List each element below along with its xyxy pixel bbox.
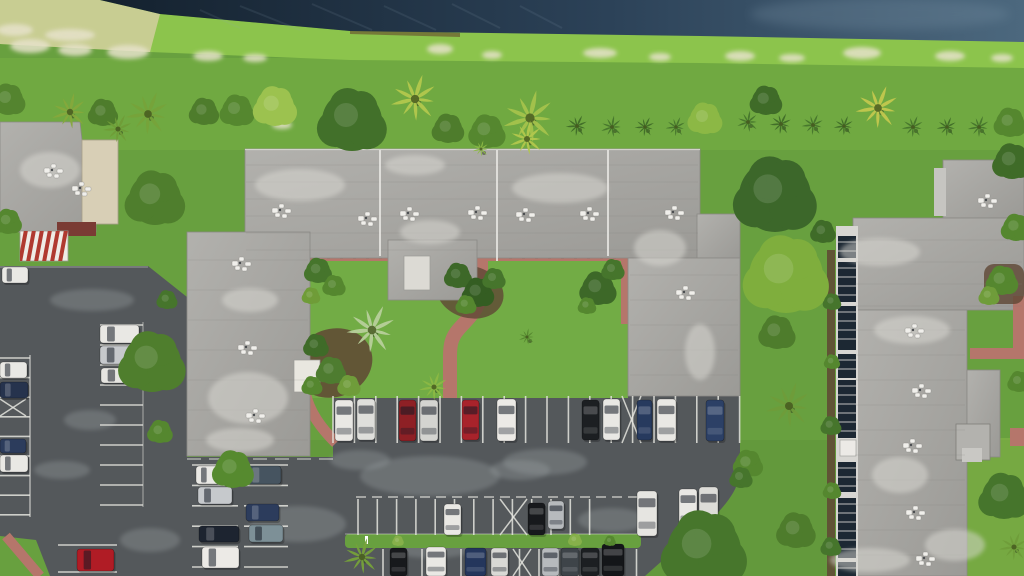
right-red-path-h	[970, 348, 1024, 359]
car-body	[357, 399, 375, 440]
car	[0, 362, 29, 380]
car	[582, 400, 601, 442]
palm-crown	[911, 125, 915, 129]
main-building-northeast-step	[697, 214, 740, 258]
roof-wear-patch	[206, 428, 274, 452]
palm-crown	[779, 122, 783, 126]
foliage-highlight	[827, 297, 833, 303]
car-rear-window	[337, 428, 352, 435]
ac-unit	[580, 211, 586, 216]
ac-unit	[918, 329, 924, 333]
car-windshield	[5, 364, 10, 377]
ac-unit	[239, 257, 244, 261]
car-windshield	[467, 552, 485, 558]
ac-unit	[985, 194, 990, 198]
car-windshield	[701, 494, 717, 503]
ac-unit	[54, 174, 59, 178]
ac-unit	[665, 210, 671, 215]
car	[548, 501, 566, 531]
car-rear-window	[708, 428, 723, 435]
ac-unit	[908, 333, 913, 337]
ac-unit	[285, 209, 291, 213]
foliage-highlight	[827, 486, 833, 492]
sand-patch	[649, 53, 671, 61]
sand-patch	[779, 54, 805, 62]
car	[246, 504, 281, 523]
foliage-highlight	[588, 279, 601, 292]
car-windshield	[204, 489, 211, 503]
ac-unit	[361, 221, 366, 225]
asphalt-wear-patch	[330, 450, 390, 470]
car-windshield	[5, 384, 11, 397]
sand-patch	[991, 54, 1013, 62]
ac-unit	[79, 182, 84, 186]
foliage-highlight	[764, 254, 794, 284]
palm-crown	[945, 125, 949, 129]
foliage-highlight	[1013, 376, 1021, 384]
ac-unit	[468, 210, 474, 215]
ac-unit	[365, 212, 370, 216]
ac-unit	[249, 418, 254, 422]
sand-patch	[427, 44, 453, 54]
foliage-highlight	[264, 96, 279, 111]
ac-unit	[75, 191, 80, 195]
ac-unit	[912, 324, 917, 328]
car-rear-window	[446, 525, 460, 530]
car-body	[542, 548, 559, 576]
car-windshield	[550, 505, 563, 511]
car	[602, 544, 626, 576]
car-body	[0, 362, 27, 378]
ac-unit	[279, 204, 284, 208]
car-windshield	[499, 406, 515, 414]
car	[420, 400, 440, 443]
ac-vent	[475, 211, 477, 213]
car-rear-window	[422, 428, 437, 435]
foliage-highlight	[139, 183, 160, 204]
ac-unit	[516, 212, 522, 217]
car-body	[0, 439, 26, 453]
car-windshield	[337, 407, 352, 415]
car-rear-window	[530, 525, 544, 530]
ac-vent	[79, 187, 81, 189]
sand-patch	[45, 29, 95, 41]
ac-vent	[913, 511, 915, 513]
ac-unit	[689, 291, 695, 295]
ac-vent	[523, 213, 525, 215]
ac-vent	[239, 262, 241, 264]
ac-unit	[678, 211, 684, 215]
ac-unit	[246, 413, 252, 418]
foliage-highlight	[984, 291, 991, 298]
foliage-highlight	[228, 102, 240, 114]
car	[581, 548, 601, 576]
glass-panel	[838, 354, 856, 378]
foliage-highlight	[582, 301, 588, 307]
sand-patch	[583, 48, 617, 58]
ac-unit	[523, 208, 528, 212]
foliage-highlight	[1008, 220, 1018, 230]
car-body	[420, 400, 438, 441]
car-windshield	[201, 468, 207, 483]
ac-unit	[519, 217, 524, 221]
foliage-highlight	[343, 380, 351, 388]
car-body	[202, 547, 239, 568]
ac-unit	[85, 187, 91, 191]
ac-vent	[672, 211, 674, 213]
ac-unit	[668, 215, 673, 219]
car-rear-window	[493, 567, 507, 571]
car	[561, 548, 581, 576]
ac-unit	[919, 384, 924, 388]
car-body	[335, 400, 353, 441]
ac-vent	[365, 217, 367, 219]
car-windshield	[583, 552, 598, 558]
ac-vent	[587, 212, 589, 214]
car	[399, 400, 418, 443]
car-body	[390, 548, 407, 576]
roof-wear-patch	[872, 457, 928, 493]
ac-unit	[915, 334, 920, 338]
foliage-highlight	[162, 295, 169, 302]
palm-crown	[144, 110, 152, 118]
ac-unit	[232, 261, 238, 266]
palm-crown	[115, 126, 120, 131]
ac-unit	[916, 556, 922, 561]
ac-vent	[245, 346, 247, 348]
car	[657, 399, 678, 443]
car-windshield	[659, 406, 675, 414]
palm-crown	[411, 95, 419, 103]
right-building-annex	[934, 168, 946, 216]
palm-crown	[431, 384, 436, 389]
ac-unit	[403, 216, 408, 220]
car-body	[603, 399, 620, 440]
palm-crown	[526, 336, 529, 339]
foliage-highlight	[309, 339, 318, 348]
ac-unit	[475, 206, 480, 210]
ac-unit	[913, 506, 918, 510]
ac-unit	[481, 211, 487, 215]
ac-unit	[529, 213, 535, 217]
car-rear-window	[550, 520, 563, 524]
foliage-highlight	[740, 456, 750, 466]
car-windshield	[255, 527, 262, 541]
foliage-highlight	[826, 542, 833, 549]
foliage-highlight	[767, 323, 780, 336]
ac-unit	[679, 295, 684, 299]
car-body	[249, 525, 283, 542]
ac-unit	[410, 217, 415, 221]
car	[542, 548, 561, 576]
ac-unit	[275, 213, 280, 217]
palm-crown	[874, 104, 882, 112]
car-body	[497, 399, 516, 441]
ac-unit	[925, 389, 931, 393]
car	[202, 547, 241, 570]
car-body	[657, 399, 676, 441]
car	[249, 525, 285, 544]
ac-unit	[906, 510, 912, 515]
ac-unit	[916, 516, 921, 520]
aerial-photo: Aerial drone view of a condominium compl…	[0, 0, 1024, 576]
sand-patch	[725, 51, 755, 61]
asphalt-wear-patch	[64, 410, 116, 430]
ac-unit	[72, 186, 78, 191]
ac-unit	[912, 388, 918, 393]
foliage-highlight	[786, 521, 800, 535]
palm-crown	[785, 402, 793, 410]
car-body	[199, 526, 239, 542]
foliage-highlight	[95, 105, 105, 115]
foliage-highlight	[135, 346, 158, 369]
ac-unit	[590, 217, 595, 221]
ac-unit	[413, 212, 419, 216]
car-rear-window	[401, 428, 415, 435]
car-body	[548, 501, 564, 529]
left-building-beige-wing	[82, 140, 118, 224]
sand-patch	[935, 51, 965, 61]
car-windshield	[563, 552, 578, 558]
foliage-highlight	[328, 280, 336, 288]
car-body	[426, 547, 446, 576]
ac-unit	[282, 214, 287, 218]
ac-unit	[981, 203, 986, 207]
car	[444, 504, 463, 537]
ac-unit	[400, 211, 406, 216]
ac-unit	[913, 449, 918, 453]
asphalt-wear-patch	[578, 508, 646, 532]
foliage-highlight	[440, 121, 451, 132]
roof-wear-patch	[255, 169, 345, 201]
car-windshield	[252, 506, 259, 520]
car-body	[465, 548, 486, 576]
car	[603, 399, 622, 442]
car-windshield	[422, 407, 437, 415]
palm-crown	[575, 124, 579, 128]
palm-crown	[674, 125, 678, 129]
roof-wear-patch	[385, 155, 445, 175]
car	[637, 400, 654, 442]
foliage-highlight	[196, 104, 206, 114]
car-windshield	[84, 551, 91, 570]
car-body	[637, 491, 657, 536]
car	[2, 267, 30, 285]
car-windshield	[401, 407, 415, 415]
car-body	[528, 503, 545, 535]
ac-vent	[683, 291, 685, 293]
sand-patch	[243, 54, 267, 62]
foliage-highlight	[994, 273, 1005, 284]
ac-unit	[675, 216, 680, 220]
sand-patch	[58, 44, 92, 56]
car-body	[444, 504, 461, 535]
roof-wear-patch	[222, 288, 278, 312]
car	[0, 455, 30, 474]
foliage-highlight	[991, 484, 1009, 502]
ac-unit	[916, 444, 922, 448]
foliage-highlight	[816, 225, 825, 234]
ac-unit	[906, 448, 911, 452]
car-windshield	[604, 549, 623, 555]
foliage-highlight	[395, 538, 399, 542]
car-windshield	[7, 269, 12, 282]
car-body	[399, 400, 416, 441]
foliage-highlight	[222, 459, 236, 473]
car-rear-window	[584, 427, 598, 433]
car	[77, 549, 116, 573]
car-body	[246, 504, 279, 521]
foliage-highlight	[461, 300, 468, 307]
car-rear-window	[583, 567, 598, 571]
ac-unit	[978, 198, 984, 203]
ac-unit	[47, 173, 52, 177]
ac-unit	[51, 164, 56, 168]
car-body	[198, 487, 232, 504]
ac-unit	[368, 222, 373, 226]
car-windshield	[605, 406, 619, 414]
car-body	[582, 400, 599, 440]
sand-patch	[107, 45, 149, 59]
car-windshield	[359, 406, 374, 414]
sand-patch	[193, 51, 223, 61]
car-windshield	[5, 457, 11, 471]
car-windshield	[530, 508, 544, 514]
foliage-highlight	[571, 536, 576, 541]
car	[426, 547, 448, 576]
car-rear-window	[467, 567, 485, 571]
ac-unit	[57, 169, 63, 173]
foliage-highlight	[307, 381, 314, 388]
ac-unit	[686, 296, 691, 300]
palm-crown	[1011, 544, 1016, 549]
ac-unit	[909, 515, 914, 519]
palm-crown	[524, 136, 530, 142]
car-body	[0, 455, 28, 472]
ac-unit	[915, 393, 920, 397]
ac-unit	[256, 419, 261, 423]
car	[706, 400, 726, 443]
car-rear-window	[464, 427, 478, 433]
car-rear-window	[392, 567, 406, 571]
foliage-highlight	[470, 285, 481, 296]
ac-unit	[358, 216, 364, 221]
car-body	[0, 382, 28, 398]
car	[0, 439, 28, 455]
car-rear-window	[659, 428, 675, 435]
ac-unit	[676, 290, 682, 295]
car-rear-window	[605, 427, 619, 434]
ac-vent	[279, 209, 281, 211]
car-windshield	[107, 348, 115, 363]
balcony-glass	[838, 236, 856, 576]
asphalt-wear-patch	[120, 528, 180, 552]
foliage-highlight	[1002, 152, 1016, 166]
car-rear-window	[604, 566, 623, 571]
parking-median-grass	[345, 534, 641, 548]
car	[465, 548, 488, 576]
foliage-highlight	[323, 363, 333, 373]
car-rear-window	[639, 522, 656, 529]
ac-unit	[242, 267, 247, 271]
ac-unit	[905, 328, 911, 333]
car	[497, 399, 518, 443]
foliage-highlight	[306, 291, 312, 297]
ac-unit	[371, 217, 377, 221]
car-windshield	[708, 407, 723, 415]
car-windshield	[428, 552, 445, 558]
ac-unit	[919, 511, 925, 515]
foliage-highlight	[451, 269, 461, 279]
car	[491, 548, 510, 576]
ac-unit	[583, 216, 588, 220]
ac-unit	[672, 206, 677, 210]
car-body	[637, 400, 652, 440]
palm-crown	[480, 148, 483, 151]
ac-unit	[251, 346, 257, 350]
foliage-highlight	[311, 264, 321, 274]
ac-unit	[245, 341, 250, 345]
ac-vent	[51, 169, 53, 171]
palm-crown	[977, 125, 981, 129]
car-windshield	[493, 552, 507, 558]
ac-unit	[683, 286, 688, 290]
roof-wear-patch	[512, 173, 608, 203]
car-body	[77, 549, 114, 571]
palm-crown	[643, 125, 647, 129]
car-body	[2, 267, 28, 283]
foliage-highlight	[334, 103, 358, 127]
foliage-highlight	[153, 425, 162, 434]
ac-unit	[238, 345, 244, 350]
foliage-highlight	[607, 538, 611, 542]
car	[335, 400, 355, 443]
ac-unit	[248, 351, 253, 355]
car-windshield	[544, 552, 558, 558]
ac-unit	[253, 409, 258, 413]
ac-unit	[991, 199, 997, 203]
scene-canvas	[0, 0, 1024, 576]
car-rear-window	[359, 427, 374, 434]
ac-vent	[912, 329, 914, 331]
foliage-highlight	[477, 122, 490, 135]
palm-crown	[610, 125, 614, 129]
car-rear-window	[639, 427, 651, 433]
asphalt-wear-patch	[50, 289, 134, 311]
car-body	[602, 544, 624, 576]
car-windshield	[107, 327, 115, 342]
palm-crown	[811, 123, 815, 127]
ac-unit	[929, 557, 935, 561]
balcony-utility-box	[840, 440, 856, 456]
car-rear-window	[563, 567, 578, 571]
ac-unit	[82, 192, 87, 196]
car-rear-window	[499, 428, 515, 435]
foliage-highlight	[1002, 115, 1013, 126]
ac-unit	[245, 262, 251, 266]
car-windshield	[5, 441, 10, 452]
car-windshield	[108, 370, 115, 382]
roof-wear-patch	[400, 220, 460, 244]
foliage-highlight	[682, 529, 712, 559]
roof-wear-patch	[840, 238, 920, 266]
palm-crown	[359, 554, 365, 560]
car	[357, 399, 377, 442]
asphalt-wear-patch	[34, 461, 90, 479]
ac-vent	[407, 212, 409, 214]
ac-unit	[526, 218, 531, 222]
car-windshield	[209, 549, 216, 567]
